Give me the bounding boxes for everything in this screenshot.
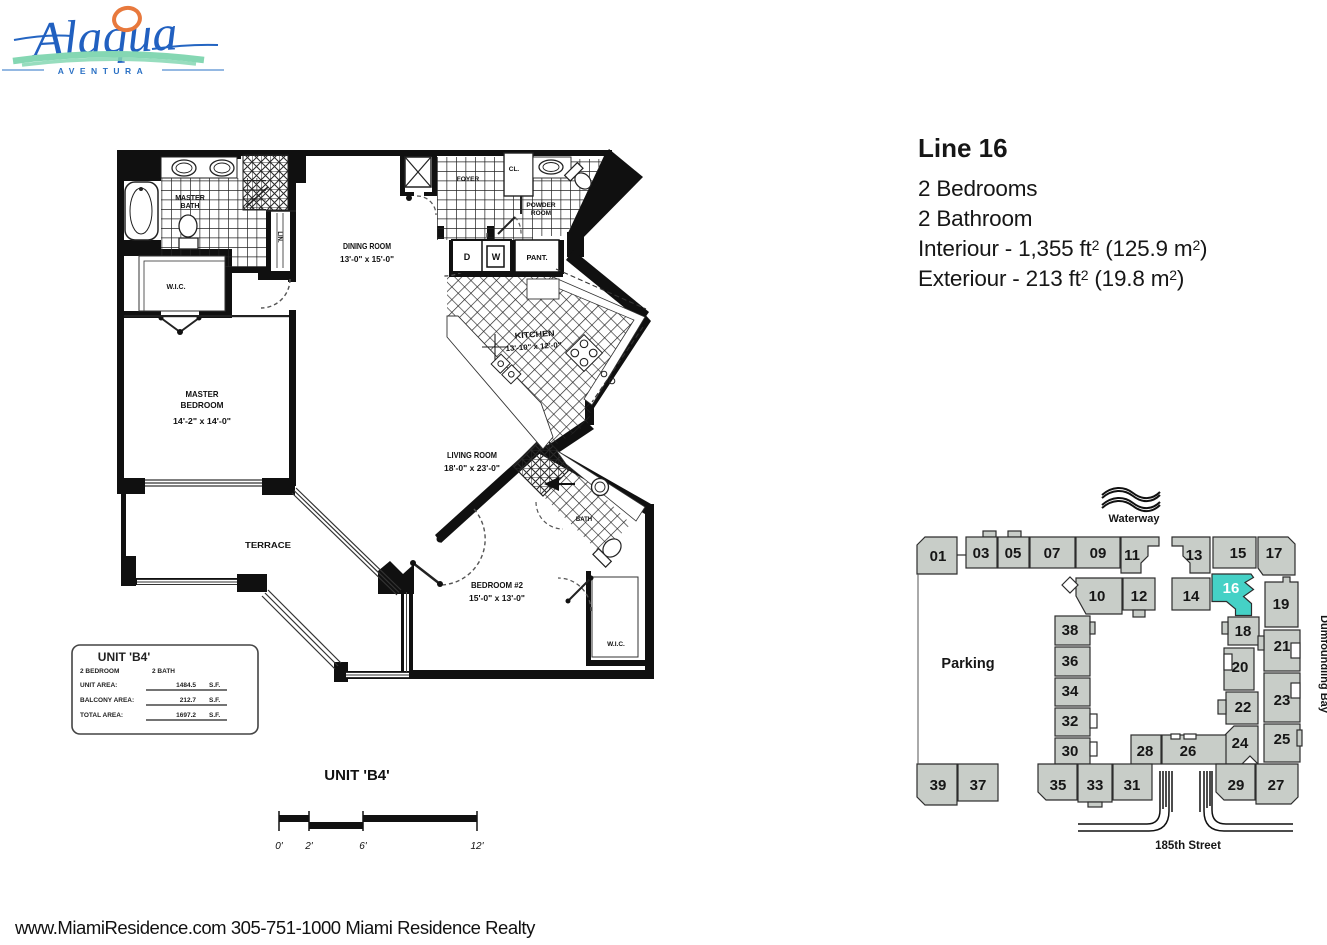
svg-text:38: 38	[1062, 622, 1079, 639]
svg-text:S.F.: S.F.	[209, 697, 220, 704]
svg-text:UNIT 'B4': UNIT 'B4'	[98, 650, 151, 664]
svg-text:12: 12	[1131, 588, 1148, 605]
svg-text:21: 21	[1274, 638, 1291, 655]
svg-text:33: 33	[1087, 777, 1104, 794]
svg-text:Dumfoundling Bay: Dumfoundling Bay	[1318, 615, 1327, 714]
svg-text:BEDROOM: BEDROOM	[181, 400, 224, 410]
svg-text:S.F.: S.F.	[209, 712, 220, 719]
svg-text:1484.5: 1484.5	[176, 682, 196, 689]
svg-text:19: 19	[1273, 596, 1290, 613]
svg-text:BATH: BATH	[576, 517, 592, 523]
svg-text:UNIT 'B4': UNIT 'B4'	[324, 767, 389, 784]
svg-text:35: 35	[1050, 777, 1067, 794]
svg-text:CL.: CL.	[509, 166, 520, 173]
svg-text:32: 32	[1062, 713, 1079, 730]
svg-text:29: 29	[1228, 777, 1245, 794]
svg-text:TERRACE: TERRACE	[245, 541, 292, 550]
svg-text:26: 26	[1180, 743, 1197, 760]
svg-text:13'-0" x 15'-0": 13'-0" x 15'-0"	[340, 255, 394, 264]
svg-text:23: 23	[1274, 692, 1291, 709]
svg-text:22: 22	[1235, 699, 1252, 716]
svg-text:MASTER: MASTER	[175, 195, 205, 202]
svg-text:LIVING ROOM: LIVING ROOM	[447, 450, 497, 460]
svg-text:14: 14	[1183, 588, 1200, 605]
svg-text:1697.2: 1697.2	[176, 712, 196, 719]
svg-text:W.I.C.: W.I.C.	[607, 641, 625, 648]
svg-text:28: 28	[1137, 743, 1154, 760]
svg-text:S.F.: S.F.	[209, 682, 220, 689]
svg-text:25: 25	[1274, 731, 1291, 748]
svg-text:16: 16	[1223, 580, 1240, 597]
svg-text:2': 2'	[304, 841, 314, 852]
svg-text:BEDROOM #2: BEDROOM #2	[471, 580, 523, 590]
svg-text:2 BEDROOM: 2 BEDROOM	[80, 668, 119, 675]
svg-text:Waterway: Waterway	[1109, 513, 1161, 525]
svg-text:15'-0" x 13'-0": 15'-0" x 13'-0"	[469, 594, 525, 603]
svg-text:13: 13	[1186, 547, 1203, 564]
svg-text:DINING ROOM: DINING ROOM	[343, 241, 391, 251]
svg-text:39: 39	[930, 777, 947, 794]
svg-text:AVENTURA: AVENTURA	[58, 66, 149, 76]
svg-text:01: 01	[930, 548, 947, 565]
svg-text:FOYER: FOYER	[457, 176, 480, 183]
svg-text:POWDER: POWDER	[526, 202, 556, 209]
svg-text:18'-0" x 23'-0": 18'-0" x 23'-0"	[444, 464, 500, 473]
svg-text:34: 34	[1062, 683, 1079, 700]
svg-text:30: 30	[1062, 743, 1079, 760]
svg-text:W: W	[492, 252, 501, 262]
svg-text:24: 24	[1232, 735, 1249, 752]
svg-text:09: 09	[1090, 545, 1107, 562]
svg-text:05: 05	[1005, 545, 1022, 562]
svg-text:LIN.: LIN.	[276, 231, 282, 243]
svg-text:0': 0'	[275, 841, 284, 852]
svg-text:UNIT AREA:: UNIT AREA:	[80, 682, 117, 689]
svg-text:BALCONY AREA:: BALCONY AREA:	[80, 697, 134, 704]
svg-text:03: 03	[973, 545, 990, 562]
svg-text:14'-2" x 14'-0": 14'-2" x 14'-0"	[173, 417, 231, 426]
svg-text:W.I.C.: W.I.C.	[166, 284, 185, 291]
svg-text:18: 18	[1235, 623, 1252, 640]
svg-text:27: 27	[1268, 777, 1285, 794]
svg-text:11: 11	[1124, 547, 1140, 564]
svg-text:PANT.: PANT.	[526, 253, 547, 262]
svg-text:212.7: 212.7	[180, 697, 197, 704]
svg-text:20: 20	[1232, 659, 1249, 676]
svg-text:12': 12'	[470, 841, 484, 852]
svg-text:07: 07	[1044, 545, 1061, 562]
svg-text:D: D	[464, 252, 471, 262]
svg-text:ROOM: ROOM	[531, 210, 551, 217]
svg-text:Parking: Parking	[941, 656, 994, 672]
svg-text:BATH: BATH	[181, 203, 200, 210]
svg-text:10: 10	[1089, 588, 1106, 605]
svg-text:37: 37	[970, 777, 987, 794]
svg-text:2 BATH: 2 BATH	[152, 668, 175, 675]
svg-text:31: 31	[1124, 777, 1141, 794]
svg-text:MASTER: MASTER	[186, 389, 219, 399]
svg-text:36: 36	[1062, 653, 1079, 670]
svg-text:6': 6'	[359, 841, 368, 852]
svg-text:17: 17	[1266, 545, 1283, 562]
svg-text:185th Street: 185th Street	[1155, 840, 1221, 852]
svg-text:TOTAL AREA:: TOTAL AREA:	[80, 712, 123, 719]
svg-text:15: 15	[1230, 545, 1247, 562]
